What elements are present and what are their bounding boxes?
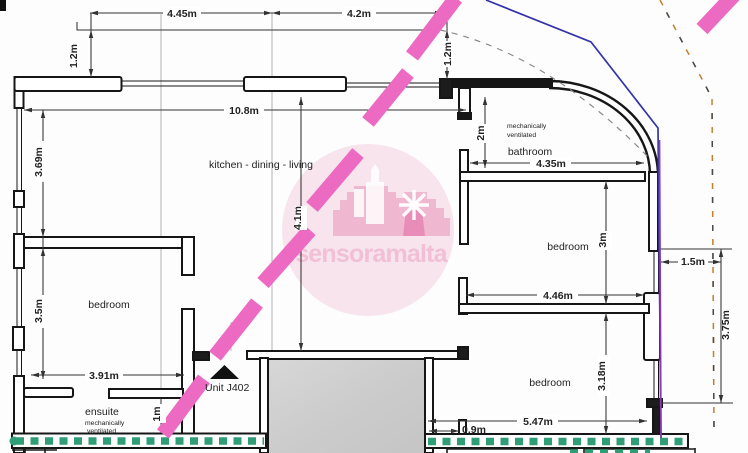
svg-text:ventilated: ventilated [507, 132, 536, 139]
svg-text:3m: 3m [597, 232, 609, 247]
svg-text:0.9m: 0.9m [462, 424, 486, 436]
svg-text:sensoramalta: sensoramalta [295, 240, 448, 268]
svg-text:1.5m: 1.5m [681, 256, 705, 268]
svg-text:1.2m: 1.2m [68, 44, 80, 68]
svg-text:4.35m: 4.35m [536, 158, 566, 170]
svg-text:kitchen - dining - living: kitchen - dining - living [209, 159, 313, 171]
svg-text:4.1m: 4.1m [292, 206, 304, 230]
svg-text:mechanically: mechanically [507, 123, 547, 130]
svg-text:ensuite: ensuite [85, 406, 119, 418]
svg-text:bedroom: bedroom [529, 377, 571, 389]
svg-text:3.5m: 3.5m [33, 299, 45, 323]
svg-text:3.91m: 3.91m [89, 370, 119, 382]
svg-text:ventilated: ventilated [87, 428, 116, 435]
svg-text:bathroom: bathroom [508, 146, 553, 158]
svg-text:3.18m: 3.18m [596, 361, 608, 391]
svg-text:3.75m: 3.75m [720, 310, 732, 340]
svg-text:2m: 2m [475, 125, 487, 140]
svg-text:4.2m: 4.2m [347, 8, 371, 20]
svg-text:Unit J402: Unit J402 [205, 382, 250, 394]
svg-text:5.47m: 5.47m [523, 416, 553, 428]
svg-text:1.2m: 1.2m [442, 42, 454, 66]
svg-text:10.8m: 10.8m [229, 105, 259, 117]
svg-text:4.45m: 4.45m [167, 8, 197, 20]
svg-text:3.69m: 3.69m [33, 147, 45, 177]
svg-text:bedroom: bedroom [547, 241, 589, 253]
svg-text:bedroom: bedroom [88, 299, 130, 311]
svg-text:4.46m: 4.46m [543, 290, 573, 302]
svg-text:mechanically: mechanically [85, 420, 125, 427]
svg-text:1m: 1m [151, 406, 163, 421]
